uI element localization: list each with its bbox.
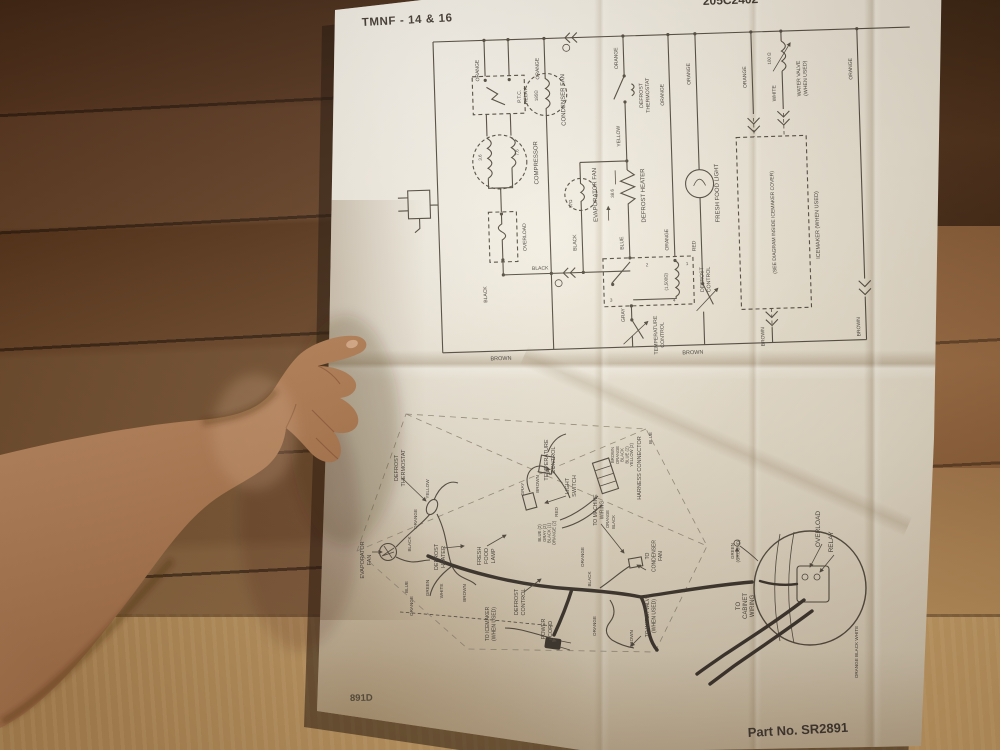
wire-label-brown: BROWN (856, 317, 863, 337)
harness-trunk (428, 556, 752, 650)
terminal-1: 1 (686, 261, 689, 266)
wire-label-orange: ORANGE (848, 57, 855, 80)
green-ground-label: GREEN(GROUND) (730, 539, 741, 562)
defrost-thermostat-capsule (424, 498, 440, 517)
circled-connector-letter (555, 280, 562, 287)
evaporator-fan-label: EVAPORATOR FAN (592, 168, 600, 222)
defrost-control-ohms: (1,500Ω) (663, 272, 669, 290)
temperature-control-label: TEMPERATURECONTROL (653, 315, 667, 355)
bottom-colors-label: ORANGE BLACK WHITE (854, 626, 859, 678)
wire-label-black: BLACK (483, 286, 490, 303)
wire-label-orange: ORANGE (413, 509, 418, 529)
fresh-food-light-label: FRESH FOOD LIGHT (714, 163, 722, 222)
wire-label-orange: ORANGE (580, 547, 585, 567)
wire-label-yellow: YELLOW (616, 125, 623, 146)
harness-connector-label: HARNESS CONNECTOR (637, 436, 643, 499)
compressor-label: COMPRESSOR (533, 140, 540, 184)
icemaker-lead-dashed (400, 612, 553, 626)
compressor-dome (754, 531, 866, 645)
overload-label: OVERLOAD (815, 511, 822, 547)
defrost-thermostat-label: DEFROSTTHERMOSTAT (638, 77, 652, 113)
page-title: TMNF - 14 & 16 (362, 12, 453, 29)
condenser-fan-ohms: 185Ω (534, 90, 539, 102)
relay-wire (760, 581, 797, 585)
wire-label-green: GREEN (425, 580, 430, 596)
light-switch-label: LIGHTSWITCH (565, 475, 578, 497)
icemaker-note: (SEE DIAGRAM INSIDE ICEMAKER COVER) (769, 171, 778, 274)
power-plug-symbol (398, 190, 431, 233)
switch-arms (605, 73, 714, 339)
wire-label-orange: ORANGE (475, 59, 482, 82)
relay-terminal (802, 574, 808, 580)
wire-label-black: BLACK (587, 571, 592, 587)
wire-label-brown: BROWN (760, 327, 767, 347)
terminal-3: 3 (610, 297, 613, 302)
part-number: Part No. SR2891 (747, 720, 848, 740)
temp-control-arrow (623, 321, 649, 344)
defrost-control-label: DEFROSTCONTROL (699, 266, 712, 292)
wire-label-black: BLACK (532, 265, 549, 272)
terminal-2: 2 (646, 262, 649, 267)
wire-label-blue: BLUE (648, 432, 653, 444)
condenser-fan-connector (628, 557, 642, 568)
top-part-code: 205C2402 (703, 0, 759, 8)
fresh-food-lamp-label: FRESHFOODLAMP (477, 547, 497, 566)
relay-label: RELAY (828, 531, 835, 552)
wire-label-orange: ORANGE (659, 83, 666, 106)
compressor-circle (472, 134, 528, 190)
wire-label-orange: ORANGE (664, 228, 671, 251)
overload-label: OVERLOAD (522, 223, 529, 251)
hand (0, 315, 400, 728)
wire-label-orange: ORANGE (686, 62, 693, 85)
photo-scene: TMNF - 14 & 16 205C2402 891D Part No. SR… (0, 0, 1000, 750)
evaporator-fan-label: EVAPORATORFAN (360, 541, 373, 578)
wire-label-orange: ORANGE (409, 596, 414, 616)
overload-relay-device (797, 566, 829, 602)
doc-code: 891D (350, 693, 373, 704)
relay-terminal (814, 574, 820, 580)
wire-label-white: WHITE (772, 84, 779, 101)
wire-label-orange: ORANGE (592, 616, 597, 636)
fresh-food-light-circle (685, 169, 714, 198)
wire-label-orange: ORANGE (742, 66, 749, 89)
wire-label-black: BLACK (407, 536, 412, 552)
circled-connector-letter (563, 44, 570, 51)
defrost-heater-ohms: 38.6 (610, 188, 615, 197)
water-valve-arrow (772, 43, 791, 72)
wire-label-brown: BROWN (629, 630, 634, 648)
icemaker-label: ICEMAKER (WHEN USED) (814, 191, 822, 259)
lamp-filament (693, 179, 705, 186)
wire-label-yellow: YELLOW (425, 479, 430, 499)
defrost-heater-label: DEFROSTHEATER (434, 543, 447, 570)
wire-label-white: WHITE (439, 584, 444, 599)
defrost-control-label: DEFROSTCONTROL (514, 588, 527, 615)
wire-label-blue: BLUE (619, 236, 625, 250)
compressor-run-ohms: 7.6 (514, 149, 519, 156)
wire-label-gray: GRAY (620, 307, 626, 322)
power-cord-plug (544, 637, 571, 650)
wire-label-blue: BLUE (404, 581, 409, 593)
schematic-wires (425, 27, 920, 353)
wire-label-black: BLACK (572, 234, 579, 251)
power-cord-label: POWERCORD (541, 619, 554, 640)
wire-label-brown: BROWN (535, 475, 540, 493)
wire-label-brown: BROWN (682, 350, 703, 357)
fan-blades (382, 546, 394, 558)
diagram-overlay: TMNF - 14 & 16 205C2402 891D Part No. SR… (0, 0, 1000, 750)
wire-label-red: RED (554, 506, 559, 516)
wire-label-brown: BROWN (462, 584, 467, 602)
ground-wire (740, 546, 758, 561)
wire-label-brown: BROWN (490, 356, 511, 363)
leader-fresh-food-lamp (487, 535, 506, 546)
wire-label-black: BLACK (611, 515, 616, 529)
pictorial-diagram: EVAPORATORFAN DEFROSTTHERMOSTAT YELLOW O… (357, 414, 866, 684)
wire-label-orange: ORANGE (605, 510, 610, 528)
wire-label-orange: ORANGE (535, 57, 542, 80)
water-valve-label: WATER VALVE(WHEN USED) (796, 60, 810, 96)
harness-colors-label: BROWNORANGEBLACKBLUE (2)YELLOW (2) (610, 443, 634, 467)
wire-label-gray: GRAY (520, 483, 525, 496)
wire-group-label: BLUE (2)GRAY (2)BLACK (1)ORANGE (2) (537, 520, 556, 545)
ptc-relay-label: P.T.C.RELAY (516, 87, 529, 104)
temperature-control-label: TEMPERATURECONTROL (544, 439, 557, 480)
leader-light-switch (545, 496, 566, 503)
knuckle-highlight (213, 374, 297, 490)
to-cabinet-wiring-label: TOCABINETWIRING (736, 593, 756, 619)
compressor-start-ohms: 3.6 (478, 154, 483, 161)
wire-label-red: RED (691, 240, 697, 251)
condenser-fan-label: CONDENSER FAN (560, 74, 568, 126)
to-icemaker-label: TO ICEMAKER(WHEN USED) (485, 606, 498, 641)
water-valve-ohms: 100 Ω (766, 52, 771, 65)
wire-label-orange: ORANGE (613, 47, 620, 70)
evaporator-fan-ohms: 57Ω (568, 199, 573, 208)
leader-relay (820, 555, 834, 572)
schematic-diagram: ORANGE ORANGE ORANGE ORANGE ORANGE ORANG… (393, 22, 920, 365)
to-condenser-fan-label: TOCONDENSERFAN (645, 540, 664, 572)
to-water-valve-label: TO WATER VALVE(WHEN USED) (645, 594, 658, 637)
defrost-heater-label: DEFROST HEATER (640, 168, 648, 223)
